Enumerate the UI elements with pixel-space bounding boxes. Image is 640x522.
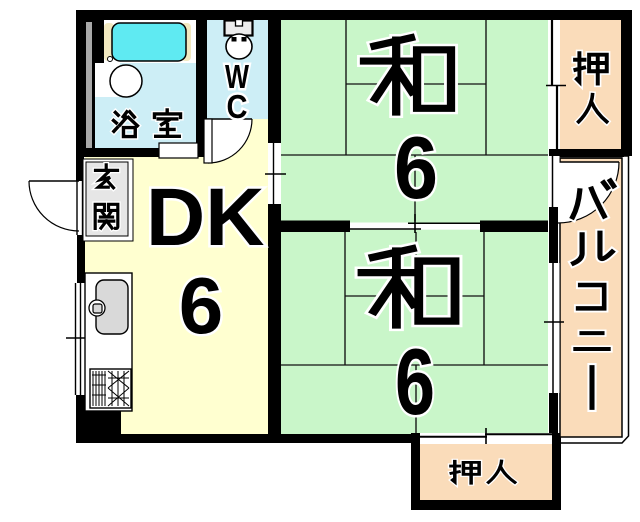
svg-text:6: 6 (179, 261, 224, 350)
svg-text:6: 6 (395, 329, 435, 434)
svg-text:C: C (227, 88, 248, 125)
svg-text:DK: DK (146, 172, 264, 263)
svg-text:6: 6 (394, 118, 438, 217)
